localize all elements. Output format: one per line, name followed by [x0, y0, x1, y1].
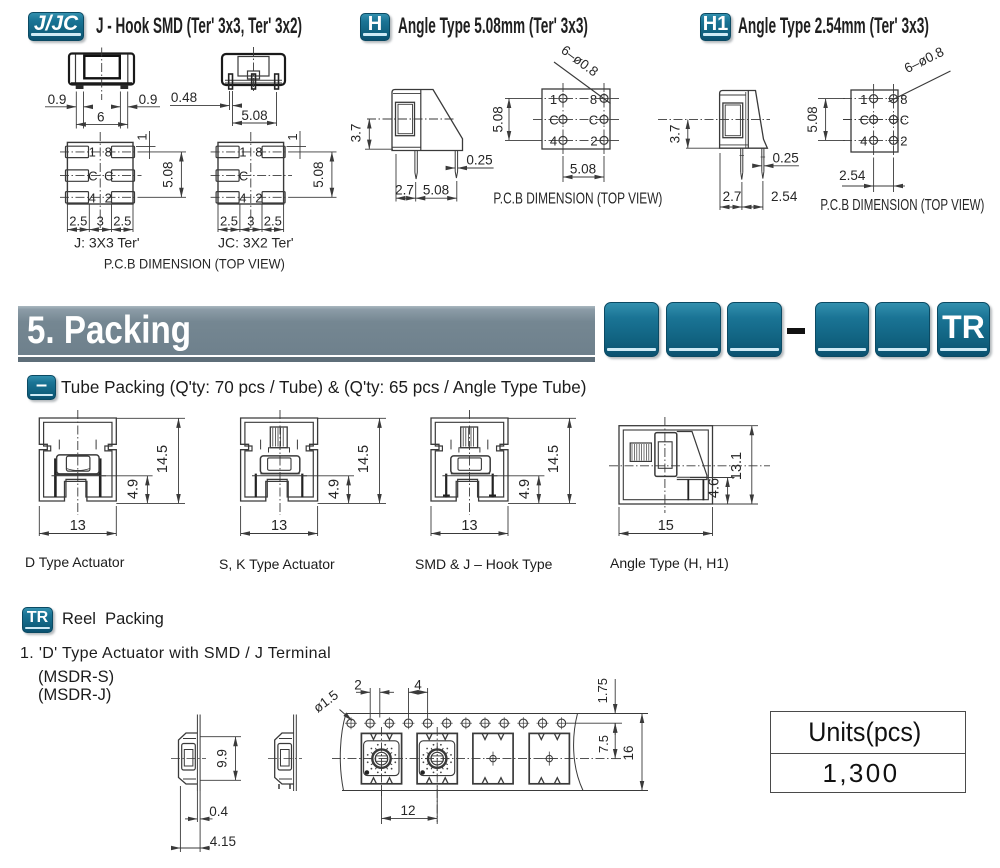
- svg-text:P.C.B DIMENSION (TOP VIEW): P.C.B DIMENSION (TOP VIEW): [104, 256, 285, 272]
- svg-text:1.75: 1.75: [595, 678, 610, 703]
- svg-text:2.5: 2.5: [220, 213, 238, 228]
- svg-text:C: C: [88, 169, 97, 184]
- svg-text:0.9: 0.9: [139, 92, 158, 107]
- svg-text:0.48: 0.48: [171, 90, 197, 105]
- svg-text:C: C: [549, 112, 558, 127]
- svg-text:6: 6: [97, 109, 105, 124]
- svg-text:2.5: 2.5: [69, 213, 87, 228]
- svg-text:7.5: 7.5: [596, 735, 611, 753]
- svg-text:15: 15: [658, 518, 674, 534]
- svg-text:5.08: 5.08: [311, 161, 326, 187]
- svg-text:C: C: [900, 112, 909, 127]
- svg-text:13: 13: [271, 518, 287, 534]
- svg-text:6–ø0.8: 6–ø0.8: [902, 44, 946, 76]
- svg-text:2.5: 2.5: [113, 213, 131, 228]
- svg-text:1: 1: [239, 144, 246, 159]
- svg-text:1: 1: [89, 144, 96, 159]
- svg-text:ø1.5: ø1.5: [310, 687, 341, 715]
- svg-text:0.9: 0.9: [48, 92, 67, 107]
- svg-text:2: 2: [590, 133, 597, 148]
- svg-text:P.C.B DIMENSION (TOP VIEW): P.C.B DIMENSION (TOP VIEW): [493, 191, 662, 208]
- svg-text:14.5: 14.5: [546, 445, 562, 473]
- svg-text:13.1: 13.1: [729, 452, 745, 480]
- svg-text:5.08: 5.08: [570, 161, 596, 176]
- svg-text:16: 16: [621, 745, 636, 760]
- svg-text:1: 1: [860, 92, 867, 107]
- svg-text:C: C: [104, 169, 113, 184]
- svg-text:4.9: 4.9: [126, 479, 142, 499]
- svg-text:2.7: 2.7: [723, 189, 742, 204]
- svg-text:2: 2: [900, 134, 907, 149]
- svg-text:2: 2: [354, 678, 362, 693]
- svg-text:1: 1: [135, 133, 150, 140]
- svg-text:5.08: 5.08: [241, 108, 267, 123]
- svg-text:2.54: 2.54: [839, 168, 866, 183]
- svg-text:4: 4: [860, 134, 867, 149]
- svg-text:8: 8: [255, 144, 262, 159]
- svg-text:4: 4: [239, 190, 246, 205]
- svg-text:JC: 3X2 Ter': JC: 3X2 Ter': [218, 234, 294, 250]
- svg-text:2.7: 2.7: [395, 183, 414, 198]
- svg-text:5.08: 5.08: [161, 161, 176, 187]
- svg-text:2.5: 2.5: [264, 213, 282, 228]
- svg-text:4: 4: [414, 678, 422, 693]
- svg-text:0.4: 0.4: [209, 804, 228, 819]
- svg-text:12: 12: [400, 803, 415, 818]
- svg-text:C: C: [239, 169, 248, 184]
- svg-text:3: 3: [247, 213, 254, 228]
- svg-text:2: 2: [255, 190, 262, 205]
- svg-text:6–ø0.8: 6–ø0.8: [558, 44, 601, 79]
- svg-text:4.9: 4.9: [517, 479, 533, 499]
- svg-text:0.25: 0.25: [466, 153, 492, 168]
- svg-text:4: 4: [89, 190, 96, 205]
- svg-text:3: 3: [97, 213, 104, 228]
- svg-text:P.C.B DIMENSION (TOP VIEW): P.C.B DIMENSION (TOP VIEW): [820, 197, 984, 214]
- svg-text:5.08: 5.08: [491, 106, 506, 132]
- svg-text:8: 8: [105, 144, 112, 159]
- svg-text:13: 13: [461, 518, 477, 534]
- svg-text:5.08: 5.08: [805, 106, 820, 132]
- svg-text:13: 13: [70, 518, 86, 534]
- svg-text:4.9: 4.9: [327, 479, 343, 499]
- svg-text:3.7: 3.7: [668, 125, 683, 144]
- svg-text:4.15: 4.15: [210, 834, 236, 849]
- svg-text:J: 3X3 Ter': J: 3X3 Ter': [74, 234, 139, 250]
- svg-text:C: C: [860, 112, 869, 127]
- svg-text:2.54: 2.54: [771, 189, 798, 204]
- svg-text:4.6: 4.6: [706, 478, 722, 498]
- svg-text:9.9: 9.9: [215, 749, 230, 768]
- svg-text:8: 8: [590, 92, 597, 107]
- svg-text:1: 1: [550, 92, 557, 107]
- svg-text:4: 4: [550, 133, 557, 148]
- svg-text:14.5: 14.5: [155, 445, 171, 473]
- svg-text:0.25: 0.25: [772, 151, 798, 166]
- svg-text:1: 1: [285, 133, 300, 140]
- svg-text:2: 2: [105, 190, 112, 205]
- svg-text:C: C: [589, 112, 598, 127]
- svg-text:5.08: 5.08: [423, 183, 449, 198]
- svg-text:3.7: 3.7: [350, 124, 364, 143]
- svg-text:14.5: 14.5: [356, 445, 372, 473]
